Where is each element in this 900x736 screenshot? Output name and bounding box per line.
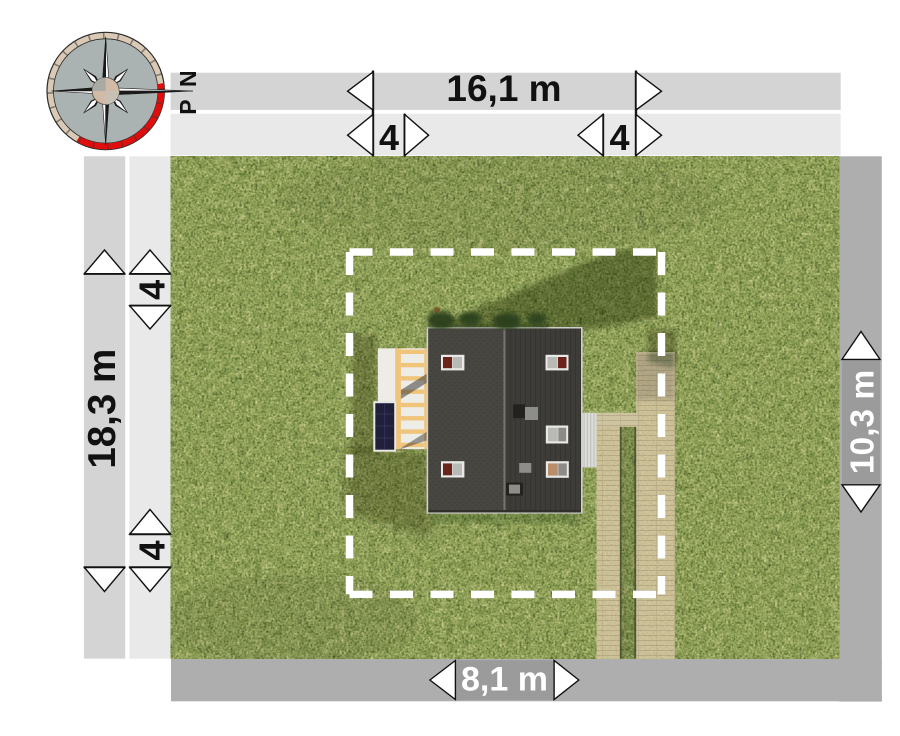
svg-text:18,3 m: 18,3 m xyxy=(81,349,124,469)
svg-text:4: 4 xyxy=(132,280,173,300)
svg-text:4: 4 xyxy=(132,540,173,560)
svg-text:10,3 m: 10,3 m xyxy=(845,370,882,474)
svg-text:8,1 m: 8,1 m xyxy=(461,661,548,699)
svg-text:4: 4 xyxy=(609,117,629,158)
svg-text:4: 4 xyxy=(379,117,399,158)
svg-text:16,1 m: 16,1 m xyxy=(446,68,561,109)
